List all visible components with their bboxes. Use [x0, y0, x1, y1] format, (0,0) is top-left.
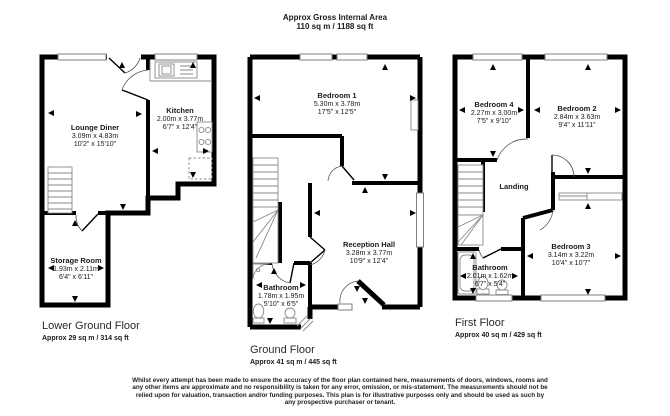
wardrobe-icon: [411, 100, 418, 130]
room-label-bedroom-2: Bedroom 2 2.84m x 3.63m 9'4" x 11'11": [554, 105, 600, 130]
header-subtitle: 110 sq m / 1188 sq ft: [0, 22, 670, 31]
floorplan-page: Approx Gross Internal Area 110 sq m / 11…: [0, 0, 670, 416]
room-label-lounge-diner: Lounge Diner 3.09m x 4.83m 10'2" x 15'10…: [71, 124, 119, 149]
room-label-bedroom-4: Bedroom 4 2.27m x 3.00m 7'5" x 9'10": [471, 101, 517, 126]
caption-first-floor: First Floor Approx 40 sq m / 429 sq ft: [455, 317, 542, 340]
caption-lower-ground-floor: Lower Ground Floor Approx 29 sq m / 314 …: [42, 320, 140, 343]
disclaimer-text: Whilst every attempt has been made to en…: [130, 377, 550, 407]
caption-ground-floor: Ground Floor Approx 41 sq m / 445 sq ft: [250, 344, 337, 367]
stairs-icon: [253, 158, 278, 263]
gross-internal-area-header: Approx Gross Internal Area 110 sq m / 11…: [0, 13, 670, 31]
header-title: Approx Gross Internal Area: [0, 13, 670, 22]
room-label-storage-room: Storage Room 1.93m x 2.11m 6'4" x 6'11": [50, 257, 101, 282]
stairs-icon: [458, 165, 483, 245]
room-label-kitchen: Kitchen 2.00m x 3.77m 6'7" x 12'4": [157, 107, 203, 132]
room-label-bedroom-3: Bedroom 3 3.14m x 3.22m 10'4" x 10'7": [548, 243, 594, 268]
room-label-landing: Landing: [499, 183, 528, 192]
room-label-bedroom-1: Bedroom 1 5.30m x 3.78m 17'5" x 12'5": [314, 92, 360, 117]
stairs-icon: [48, 167, 72, 213]
wardrobe-icon: [559, 193, 622, 200]
room-label-bathroom-ff: Bathroom 2.01m x 1.62m 6'7" x 5'4": [467, 264, 513, 289]
room-label-reception-hall: Reception Hall 3.28m x 3.77m 10'9" x 12'…: [343, 241, 395, 266]
room-label-bathroom-gf: Bathroom 1.78m x 1.95m 5'10" x 6'5": [258, 284, 304, 309]
sink-icon: [284, 308, 296, 323]
sink-icon: [155, 62, 197, 78]
